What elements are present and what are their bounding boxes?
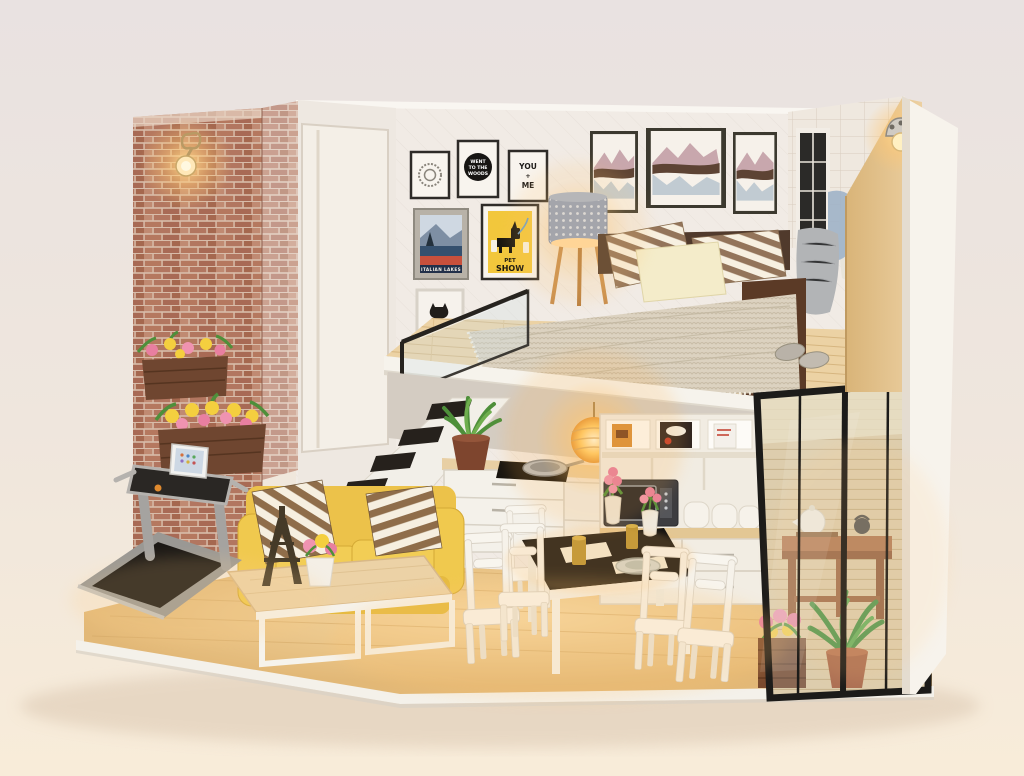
poster-italian-lakes-label: ITALIAN LAKES bbox=[421, 267, 461, 272]
bed-pillow-cream bbox=[636, 242, 726, 302]
frame-went-to-the-woods: WENT TO THE WOODS bbox=[458, 141, 498, 197]
poster-woods-line3: WOODS bbox=[468, 171, 488, 177]
poster-petshow-line2: SHOW bbox=[496, 264, 524, 273]
brick-wall-lamp bbox=[140, 118, 232, 210]
food-box-white bbox=[714, 424, 736, 448]
wall-art-triptych-center bbox=[648, 130, 723, 207]
poster-youme-line3: ME bbox=[522, 181, 535, 190]
frame-you-me: YOU + ME bbox=[509, 151, 547, 201]
plant-pot bbox=[452, 438, 490, 470]
poster-woods-line1: WENT bbox=[470, 159, 486, 165]
poster-youme-line2: + bbox=[525, 172, 530, 180]
dollhouse-scene: WENT TO THE WOODS YOU + ME ITALIAN LAKES… bbox=[0, 0, 1024, 776]
jar-set bbox=[684, 502, 760, 529]
poster-youme-line1: YOU bbox=[518, 162, 537, 171]
sofa-pillow-right bbox=[366, 486, 442, 556]
gold-cup-2 bbox=[626, 526, 638, 549]
poster-woods-line2: TO THE bbox=[469, 165, 488, 171]
wall-art-triptych-right bbox=[734, 134, 775, 213]
gold-cup-1 bbox=[572, 538, 586, 565]
frame-medallion bbox=[411, 152, 449, 198]
treadmill-tablet bbox=[170, 444, 208, 478]
frame-italian-lakes: ITALIAN LAKES bbox=[414, 209, 468, 279]
dollhouse-photo: WENT TO THE WOODS YOU + ME ITALIAN LAKES… bbox=[0, 0, 1024, 776]
